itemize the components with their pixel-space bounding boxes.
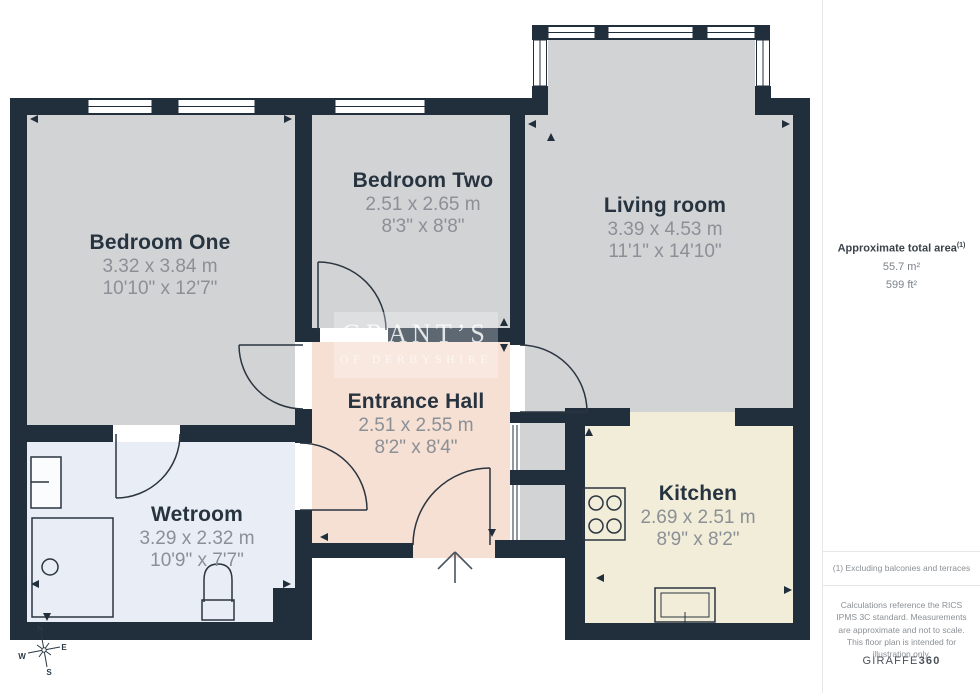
bay-window-floor: [548, 40, 755, 115]
area-footnote: (1) Excluding balconies and terraces: [823, 563, 980, 573]
room-dimensions-metric: 2.51 x 2.65 m: [353, 194, 494, 216]
room-dimensions-metric: 3.29 x 2.32 m: [139, 528, 254, 550]
footnote-reference: (1): [957, 242, 966, 249]
kitchen-opening-floor: [630, 412, 735, 426]
room-name: Kitchen: [640, 482, 755, 507]
sidebar-rule: [823, 551, 980, 552]
room-name: Living room: [604, 194, 726, 219]
total-area-metric: 55.7 m²: [823, 261, 980, 273]
room-name: Wetroom: [139, 503, 254, 528]
cupboard-two-floor: [520, 485, 565, 540]
sidebar-rule: [823, 585, 980, 586]
compass-south-label: S: [46, 668, 52, 677]
room-label-living-room: Living room 3.39 x 4.53 m 11'1" x 14'10": [604, 194, 726, 264]
room-dimensions-imperial: 8'3" x 8'8": [353, 216, 494, 238]
room-label-wetroom: Wetroom 3.29 x 2.32 m 10'9" x 7'7": [139, 503, 254, 573]
room-dimensions-imperial: 8'2" x 8'4": [348, 437, 485, 459]
room-dimensions-imperial: 10'9" x 7'7": [139, 550, 254, 572]
sidebar-divider: [822, 0, 823, 693]
room-dimensions-metric: 3.39 x 4.53 m: [604, 219, 726, 241]
room-name: Entrance Hall: [348, 390, 485, 415]
room-label-bedroom-two: Bedroom Two 2.51 x 2.65 m 8'3" x 8'8": [353, 169, 494, 239]
agency-watermark: GRANT’S OF DERBYSHIRE: [334, 312, 498, 378]
total-area-block: Approximate total area(1) 55.7 m² 599 ft…: [823, 242, 980, 291]
room-label-entrance-hall: Entrance Hall 2.51 x 2.55 m 8'2" x 8'4": [348, 390, 485, 460]
room-label-bedroom-one: Bedroom One 3.32 x 3.84 m 10'10" x 12'7": [89, 231, 230, 301]
room-dimensions-imperial: 11'1" x 14'10": [604, 241, 726, 263]
basin-icon: [31, 457, 61, 508]
room-label-kitchen: Kitchen 2.69 x 2.51 m 8'9" x 8'2": [640, 482, 755, 552]
room-dimensions-imperial: 8'9" x 8'2": [640, 529, 755, 551]
room-name: Bedroom One: [89, 231, 230, 256]
floorplan-page: N E S W GRANT’S OF DERBYSHIRE Bedroom On…: [0, 0, 980, 693]
room-dimensions-metric: 2.69 x 2.51 m: [640, 507, 755, 529]
total-area-imperial: 599 ft²: [823, 279, 980, 291]
disclaimer-text: Calculations reference the RICS IPMS 3C …: [831, 599, 972, 661]
total-area-title: Approximate total area(1): [823, 242, 980, 255]
room-dimensions-imperial: 10'10" x 12'7": [89, 278, 230, 300]
cupboard-one-floor: [520, 423, 565, 470]
giraffe360-logo: GIRAFFE360: [823, 655, 980, 667]
room-dimensions-metric: 3.32 x 3.84 m: [89, 256, 230, 278]
room-name: Bedroom Two: [353, 169, 494, 194]
room-dimensions-metric: 2.51 x 2.55 m: [348, 415, 485, 437]
entrance-gap-floor: [413, 543, 495, 558]
watermark-subtitle: OF DERBYSHIRE: [334, 352, 498, 367]
compass-north-label: N: [37, 624, 43, 633]
compass-west-label: W: [18, 652, 26, 661]
watermark-name: GRANT’S: [334, 319, 498, 349]
compass-east-label: E: [61, 643, 67, 652]
